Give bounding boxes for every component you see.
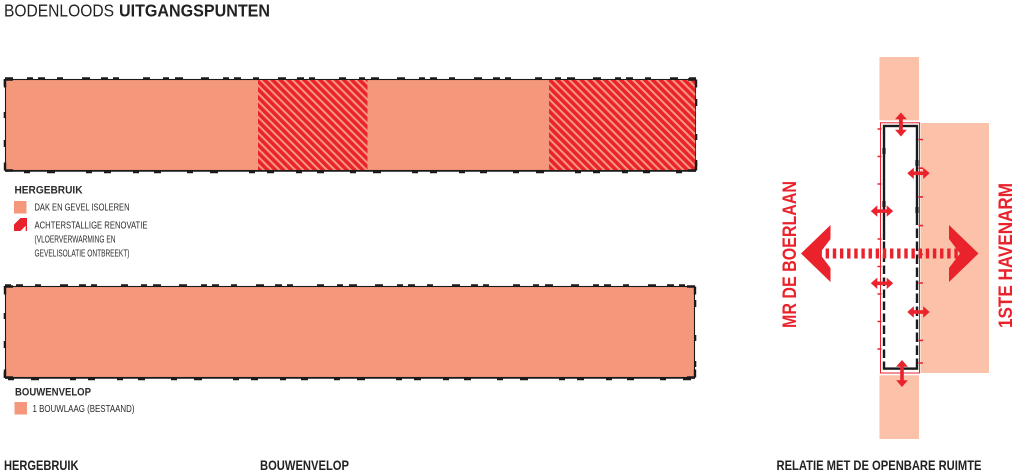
svg-text:DAK EN GEVEL ISOLEREN: DAK EN GEVEL ISOLEREN — [35, 203, 130, 214]
svg-text:UITGANGSPUNTEN: UITGANGSPUNTEN — [119, 1, 270, 21]
svg-text:ACHTERSTALLIGE RENOVATIE: ACHTERSTALLIGE RENOVATIE — [35, 221, 148, 232]
svg-text:HERGEBRUIK: HERGEBRUIK — [4, 457, 79, 473]
svg-text:BOUWENVELOP: BOUWENVELOP — [15, 387, 91, 399]
svg-text:HERGEBRUIK: HERGEBRUIK — [15, 185, 83, 197]
svg-text:GEVELISOLATIE ONTBREEKT): GEVELISOLATIE ONTBREEKT) — [35, 249, 130, 260]
svg-text:1 BOUWLAAG (BESTAAND): 1 BOUWLAAG (BESTAAND) — [33, 404, 135, 415]
svg-text:RELATIE MET DE OPENBARE RUIMTE: RELATIE MET DE OPENBARE RUIMTE — [777, 457, 982, 473]
svg-text:MR DE BOERLAAN: MR DE BOERLAAN — [780, 181, 801, 328]
svg-text:(VLOERVERWARMING EN: (VLOERVERWARMING EN — [35, 235, 116, 246]
svg-text:BODENLOODS: BODENLOODS — [4, 1, 114, 21]
svg-text:BOUWENVELOP: BOUWENVELOP — [260, 457, 349, 473]
svg-text:1STE HAVENARM: 1STE HAVENARM — [996, 183, 1017, 328]
